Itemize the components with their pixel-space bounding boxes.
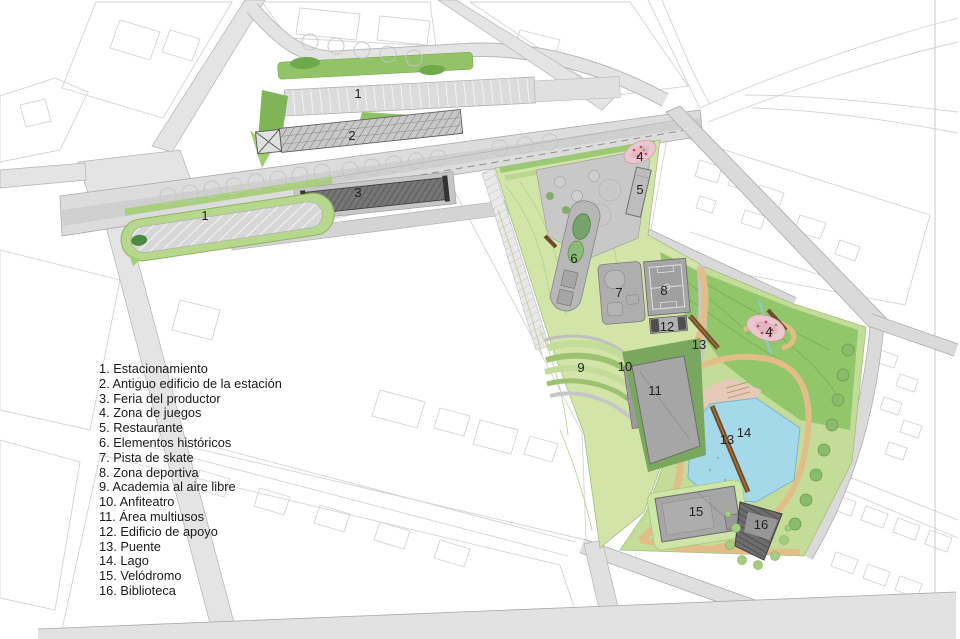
map-label-4: 4 <box>765 324 772 339</box>
legend-item: 6. Elementos históricos <box>99 436 307 451</box>
road-bottom-strip <box>38 592 956 639</box>
playground-4-southeast-dots-part <box>761 332 764 335</box>
map-label-10: 10 <box>618 359 632 374</box>
context-buildings-part <box>473 420 518 454</box>
context-buildings-part <box>696 196 716 213</box>
map-label-15: 15 <box>689 504 703 519</box>
map-label-8: 8 <box>660 283 667 298</box>
context-buildings-part <box>752 108 958 133</box>
trees-library-part <box>780 536 789 545</box>
context-buildings-part <box>434 540 470 567</box>
tree-row-east-part <box>832 394 844 406</box>
trees-library-part <box>732 524 741 533</box>
tree-row-east-part <box>826 419 838 431</box>
legend-item: 16. Biblioteca <box>99 584 307 599</box>
plaza-trees-part <box>562 206 570 214</box>
context-buildings-part <box>110 20 160 60</box>
context-buildings-part <box>372 390 425 428</box>
trees-library-part <box>754 561 763 570</box>
playground-4-top-dots-part <box>645 153 648 156</box>
plaza-trees-part <box>546 192 554 200</box>
map-label-2: 2 <box>348 128 355 143</box>
context-buildings-part <box>880 397 902 415</box>
context-buildings-part <box>20 99 51 127</box>
parking-area-1-top-part <box>284 77 535 116</box>
context-buildings-part <box>374 522 410 549</box>
tree-row-east-part <box>800 494 812 506</box>
context-buildings-part <box>925 530 952 552</box>
plaza-trees-part <box>555 177 566 188</box>
trees-library-part <box>738 556 747 565</box>
parking-area-1-top <box>284 73 620 116</box>
context-buildings-part <box>861 506 888 528</box>
context-buildings-part <box>835 240 860 261</box>
context-buildings-part <box>377 16 430 45</box>
playground-4-southeast-dots-part <box>757 325 760 328</box>
context-buildings-part <box>863 564 890 586</box>
legend-item: 10. Anfiteatro <box>99 495 307 510</box>
historic-elements-6-part <box>557 289 574 306</box>
playground-4-southeast-dots-part <box>765 321 768 324</box>
map-label-13: 13 <box>692 337 706 352</box>
support-building-12-part <box>650 319 659 333</box>
trees-library-part <box>785 525 791 531</box>
legend-item: 9. Academia al aire libre <box>99 480 307 495</box>
legend: 1. Estacionamiento2. Antiguo edificio de… <box>99 362 307 599</box>
road-left-exit <box>0 163 86 188</box>
tree-row-east-part <box>842 344 854 356</box>
legend-item: 13. Puente <box>99 540 307 555</box>
playground-4-top-dots-part <box>633 149 636 152</box>
context-buildings-part <box>524 436 558 462</box>
legend-item: 11. Área multiusos <box>99 510 307 525</box>
map-label-7: 7 <box>615 285 622 300</box>
legend-item: 8. Zona deportiva <box>99 466 307 481</box>
context-buildings-part <box>708 42 958 122</box>
lake-dots-part <box>724 479 726 481</box>
context-buildings-part <box>885 442 907 460</box>
legend-item: 14. Lago <box>99 554 307 569</box>
context-buildings-part <box>700 18 958 108</box>
map-label-11: 11 <box>648 383 662 398</box>
map-label-3: 3 <box>354 185 361 200</box>
skate-park-7-part <box>607 302 623 316</box>
tree-row-east-part <box>837 369 849 381</box>
lake-dots-part <box>717 457 719 459</box>
map-label-1: 1 <box>201 208 208 223</box>
context-buildings-part <box>0 78 88 162</box>
context-buildings-part <box>900 420 922 438</box>
map-label-12: 12 <box>660 319 674 334</box>
legend-item: 5. Restaurante <box>99 421 307 436</box>
map-label-5: 5 <box>636 182 643 197</box>
context-buildings-part <box>434 408 470 436</box>
support-building-12-part <box>677 316 686 330</box>
tree-row-east-part <box>810 469 822 481</box>
plaza-trees-part <box>589 171 600 182</box>
trees-library-part <box>771 552 780 561</box>
playground-4-southeast-dots-part <box>775 324 778 327</box>
legend-item: 1. Estacionamiento <box>99 362 307 377</box>
lake-dots-part <box>709 469 711 471</box>
context-buildings-part <box>831 552 858 574</box>
road-top-left <box>152 0 265 152</box>
map-label-9: 9 <box>577 360 584 375</box>
map-label-13: 13 <box>720 432 734 447</box>
context-buildings-part <box>314 505 350 532</box>
context-buildings-part <box>172 300 220 340</box>
trees-library-part <box>726 541 735 550</box>
trees-library-part <box>725 511 731 517</box>
tree-row-east-part <box>818 444 830 456</box>
plaza-trees-part <box>572 191 583 202</box>
legend-item: 3. Feria del productor <box>99 392 307 407</box>
map-label-14: 14 <box>737 425 751 440</box>
map-label-16: 16 <box>754 517 768 532</box>
site-plan-canvas: 123145678121391011413141516 1. Estaciona… <box>0 0 960 639</box>
map-label-4: 4 <box>636 149 643 164</box>
legend-item: 7. Pista de skate <box>99 451 307 466</box>
context-buildings-part <box>162 30 200 61</box>
map-label-1: 1 <box>354 86 361 101</box>
context-buildings-part <box>893 518 920 540</box>
legend-item: 15. Velódromo <box>99 569 307 584</box>
parking-area-1-top-part <box>534 76 620 101</box>
legend-item: 4. Zona de juegos <box>99 406 307 421</box>
map-label-6: 6 <box>570 251 577 266</box>
context-buildings-part <box>896 374 918 392</box>
playground-4-top-dots-part <box>640 146 643 149</box>
legend-item: 2. Antiguo edificio de la estación <box>99 377 307 392</box>
legend-item: 12. Edificio de apoyo <box>99 525 307 540</box>
context-buildings-part <box>0 440 80 610</box>
